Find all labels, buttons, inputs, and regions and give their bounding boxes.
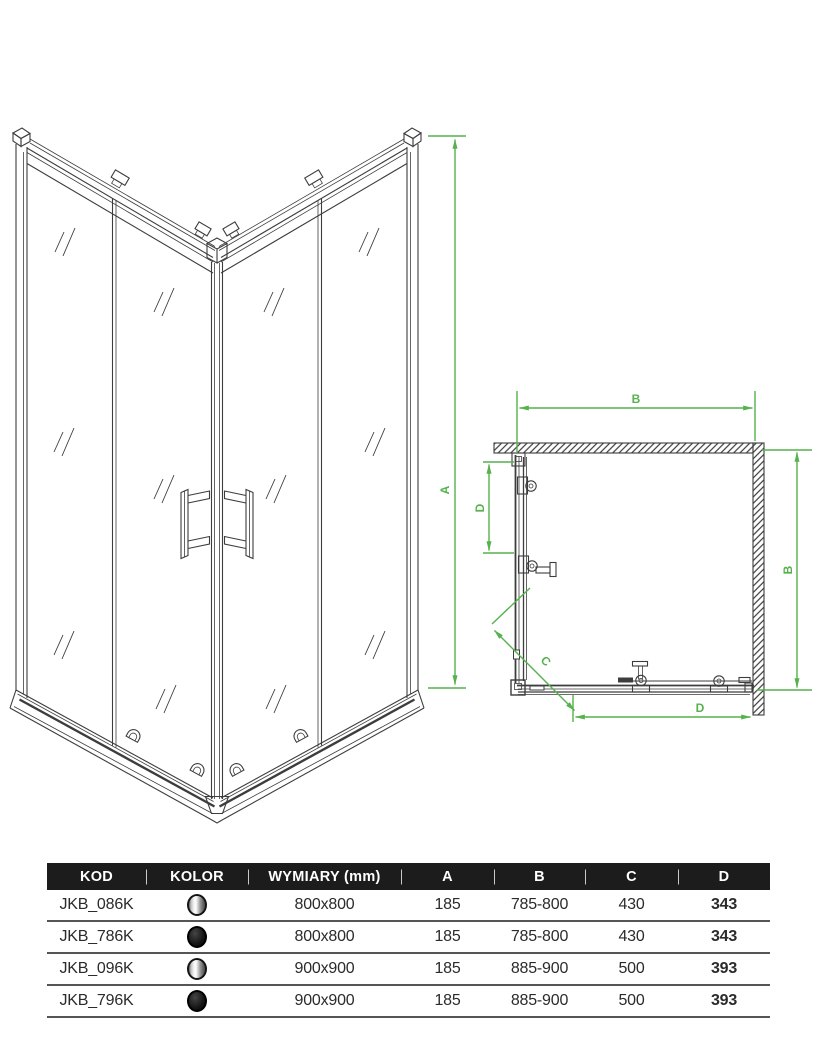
cell-wymiary: 900x900 [248,992,401,1010]
header-cell-kod: KOD [47,869,146,885]
dim-c-label: C [538,653,554,669]
cell-kod: JKB_796K [47,992,146,1010]
enclosure-left-half [10,128,215,820]
dim-b-top-label: B [632,392,641,406]
color-swatch [187,958,207,980]
wall-top [494,443,753,453]
cell-c: 500 [585,960,678,978]
cell-kolor [146,990,248,1012]
cell-wymiary: 800x800 [248,896,401,914]
header-cell-c: C [585,869,678,885]
table-row: JKB_786K 800x800 185 785-800 430 343 [47,922,770,954]
dim-a: A [428,136,466,688]
cell-d: 393 [678,992,770,1010]
cell-c: 430 [585,928,678,946]
table-row: JKB_796K 900x900 185 885-900 500 393 [47,986,770,1018]
door-handle [181,490,210,559]
cell-b: 885-900 [494,960,585,978]
spec-table: KOD KOLOR WYMIARY (mm) A B C D JKB_086K … [47,863,770,1018]
color-swatch [187,926,207,948]
cell-b: 785-800 [494,928,585,946]
cell-d: 343 [678,896,770,914]
cell-wymiary: 800x800 [248,928,401,946]
cell-d: 393 [678,960,770,978]
table-row: JKB_086K 800x800 185 785-800 430 343 [47,890,770,922]
color-swatch [187,894,207,916]
cell-a: 185 [401,896,494,914]
cell-d: 343 [678,928,770,946]
top-view: B B D D C [473,391,812,722]
spec-table-body: JKB_086K 800x800 185 785-800 430 343 JKB… [47,890,770,1018]
cell-kod: JKB_086K [47,896,146,914]
wall-right [753,443,764,715]
cell-c: 500 [585,992,678,1010]
cell-c: 430 [585,896,678,914]
cell-kod: JKB_786K [47,928,146,946]
cell-kod: JKB_096K [47,960,146,978]
header-cell-b: B [494,869,585,885]
table-row: JKB_096K 900x900 185 885-900 500 393 [47,954,770,986]
dim-b-right: B [757,450,812,690]
cell-b: 785-800 [494,896,585,914]
cell-wymiary: 900x900 [248,960,401,978]
dim-d-bottom: D [573,695,751,722]
technical-drawing: A [0,0,815,845]
dim-a-label: A [438,485,452,494]
color-swatch [187,990,207,1012]
header-cell-kolor: KOLOR [146,869,248,885]
door-track-bottom [517,662,754,695]
cell-b: 885-900 [494,992,585,1010]
cell-kolor [146,894,248,916]
cell-kolor [146,926,248,948]
dim-d-left: D [473,462,514,553]
header-cell-a: A [401,869,494,885]
iso-view: A [10,128,466,823]
cell-a: 185 [401,992,494,1010]
enclosure-right-half [219,128,424,820]
header-cell-d: D [678,869,770,885]
header-cell-wymiary: WYMIARY (mm) [248,869,401,885]
cell-a: 185 [401,928,494,946]
dim-b-right-label: B [781,565,795,574]
spec-table-header: KOD KOLOR WYMIARY (mm) A B C D [47,863,770,890]
cell-a: 185 [401,960,494,978]
dim-d-bottom-label: D [696,701,705,715]
dim-d-left-label: D [473,503,487,512]
cell-kolor [146,958,248,980]
